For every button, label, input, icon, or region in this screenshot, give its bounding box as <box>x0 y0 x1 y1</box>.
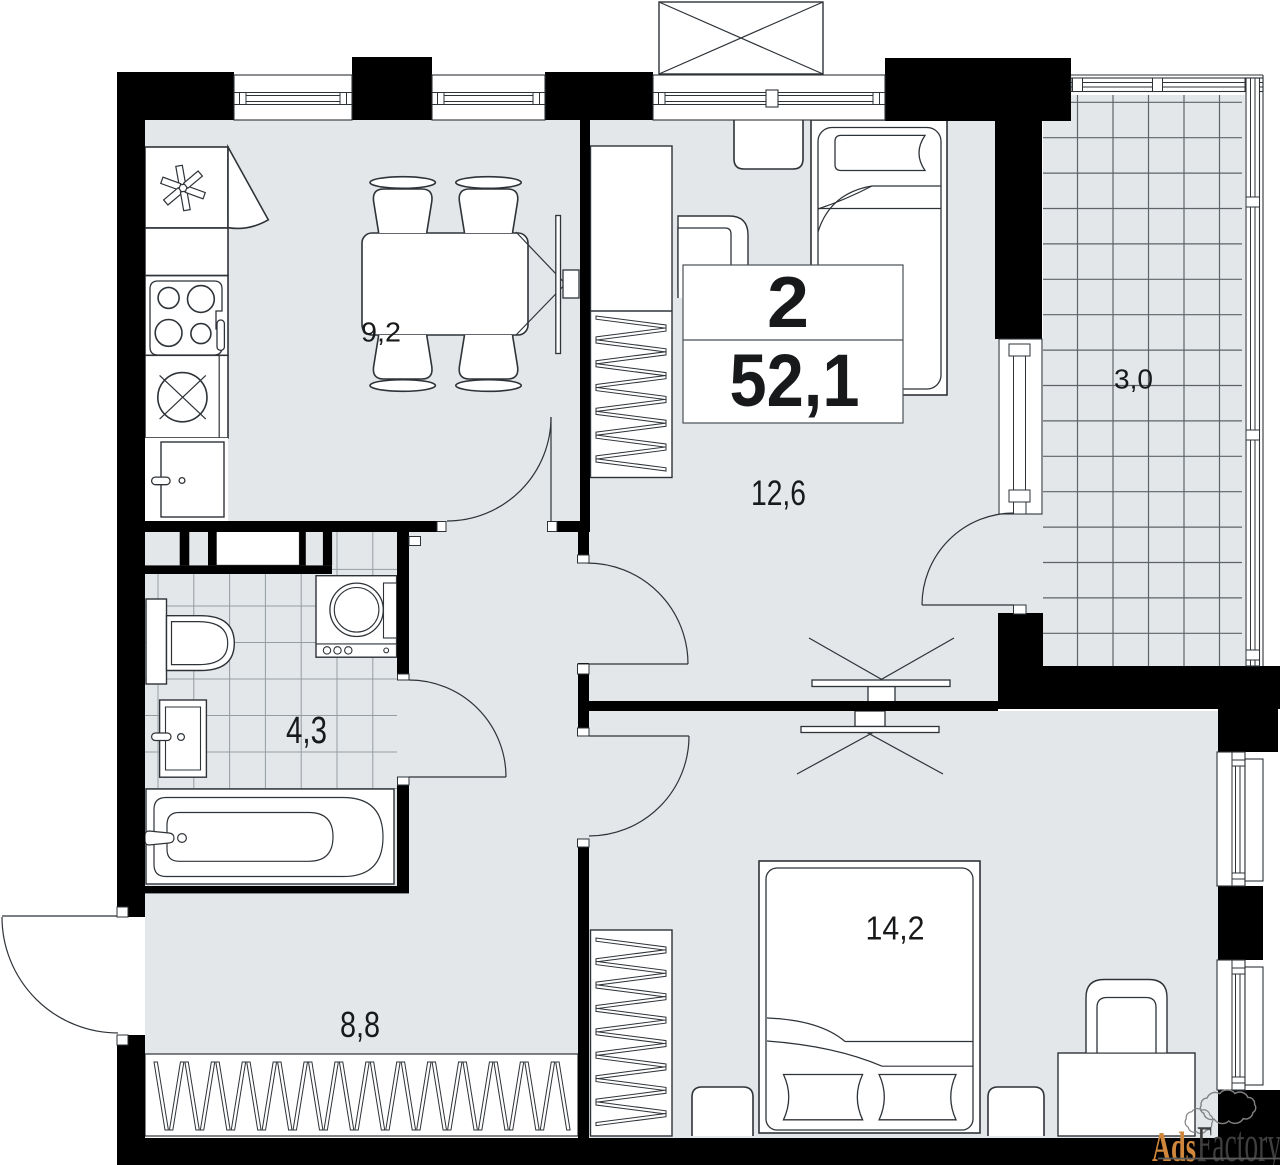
svg-text:4,3: 4,3 <box>286 710 327 752</box>
svg-text:2: 2 <box>767 263 809 343</box>
svg-text:3,0: 3,0 <box>1114 364 1153 395</box>
svg-text:8,8: 8,8 <box>340 1004 380 1045</box>
svg-text:14,2: 14,2 <box>866 910 925 947</box>
svg-text:9,2: 9,2 <box>361 317 401 348</box>
svg-text:52,1: 52,1 <box>730 339 860 422</box>
svg-text:12,6: 12,6 <box>751 474 806 513</box>
